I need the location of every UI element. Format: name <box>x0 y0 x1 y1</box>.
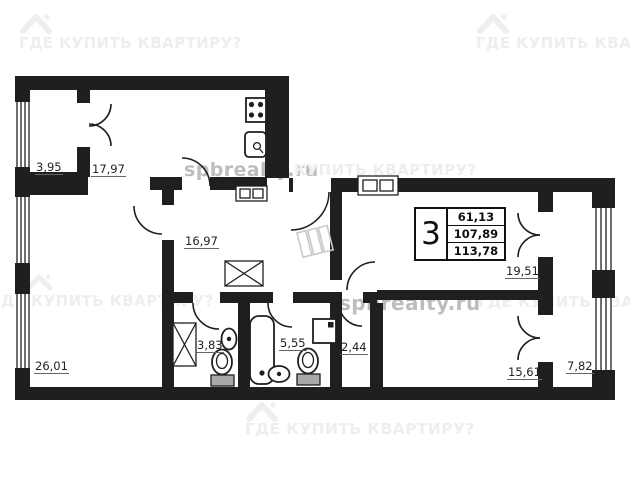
bath-sink-icon <box>269 366 290 382</box>
room-area-label-balcony-top-left: 3,95 <box>35 161 63 175</box>
window-left-lower <box>15 294 30 368</box>
room-area-label-hall: 16,97 <box>184 235 219 249</box>
door-arc <box>518 338 540 360</box>
wall-niche-icon <box>358 176 398 195</box>
floor-plan-screenshot: ГДЕ КУПИТЬ КВАРТИРУ? ГДЕ КУПИТЬ КВАРТИРУ… <box>0 0 630 480</box>
floor-plan-svg <box>0 0 630 480</box>
washing-machine-icon <box>313 319 336 343</box>
door-arc <box>134 206 162 234</box>
door-arc <box>182 158 210 186</box>
living-area-value: 61,13 <box>448 209 504 225</box>
door-arc <box>193 303 219 329</box>
window-left-balcony <box>15 102 30 167</box>
door-arc <box>89 124 111 146</box>
wc-sink-icon <box>222 329 237 350</box>
room-count: 3 <box>416 209 448 259</box>
door-arc <box>518 213 540 235</box>
window-left-upper <box>15 197 30 263</box>
window-right-upper <box>593 208 613 270</box>
toilet-icon <box>297 349 320 386</box>
window-right-lower <box>593 298 613 370</box>
room-area-label-kitchen: 17,97 <box>91 163 126 177</box>
kitchen-sink-icon <box>245 132 266 157</box>
toilet-icon <box>211 350 234 387</box>
stove-icon <box>246 98 266 122</box>
door-arc <box>347 262 375 290</box>
room-area-label-storage: 2,44 <box>340 341 368 355</box>
door-arc <box>518 235 540 257</box>
apartment-summary-table: 3 61,13 107,89 113,78 <box>414 207 506 261</box>
hall-cabinet-icon <box>236 186 267 201</box>
room-area-label-room-top-right: 19,51 <box>505 265 540 279</box>
total-area-with-balconies-value: 113,78 <box>448 242 504 259</box>
shaft-icon <box>173 323 196 366</box>
room-area-label-living-room: 26,01 <box>34 360 69 374</box>
radiator-sketch-icon <box>297 226 333 258</box>
door-arc <box>339 303 362 326</box>
room-area-label-balcony-right: 7,82 <box>566 360 594 374</box>
room-area-label-wc: 3,83 <box>196 339 224 353</box>
room-area-label-bathroom: 5,55 <box>279 337 307 351</box>
room-area-label-bedroom: 15,61 <box>507 366 542 380</box>
door-arc <box>291 192 329 230</box>
wardrobe-icon <box>225 261 263 286</box>
total-area-value: 107,89 <box>448 225 504 242</box>
door-arc <box>518 316 540 338</box>
door-arc <box>89 104 111 126</box>
